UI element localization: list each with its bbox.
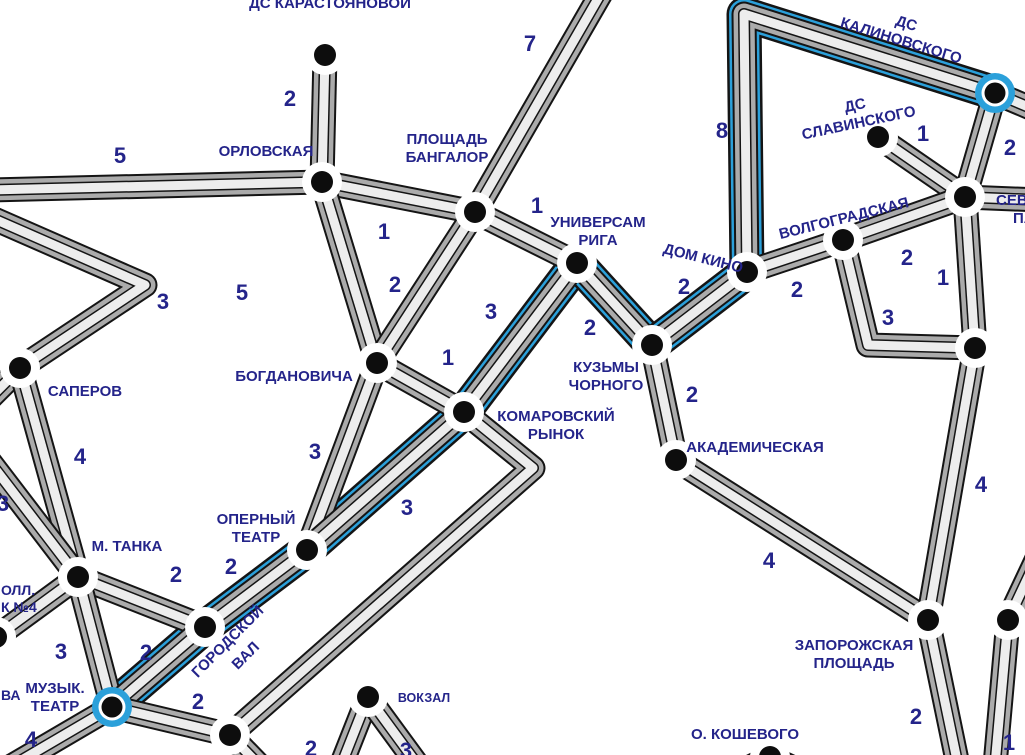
edge-weight-label: 2 (901, 245, 913, 270)
station-node-akademicheskaya[interactable] (665, 449, 687, 471)
edge-weight-label: 2 (192, 689, 204, 714)
edge-weight-label: 1 (1003, 730, 1015, 755)
edge-weight-label: 4 (74, 444, 87, 469)
station-label: ПА (1013, 210, 1025, 227)
edge-weight-label: 2 (1004, 135, 1016, 160)
edge-weight-label: 5 (236, 280, 248, 305)
edge-weight-label: 2 (140, 640, 152, 665)
station-node-muzyk-teatr[interactable] (102, 697, 123, 718)
station-node-unnamed-east[interactable] (997, 609, 1019, 631)
road-segment-light (322, 182, 377, 363)
station-node-orlovskaya[interactable] (311, 171, 333, 193)
edge-weight-label: 2 (910, 704, 922, 729)
edge-weight-label: 3 (882, 305, 894, 330)
station-node-sevastopolsky-park[interactable] (954, 186, 976, 208)
station-node-kuzmy-chornogo[interactable] (641, 334, 663, 356)
labels-layer: ДС КАРАСТОЯНОВОЙОРЛОВСКАЯПЛОЩАДЬБАНГАЛОР… (0, 0, 1025, 755)
route-road-segment-light (464, 263, 577, 412)
station-label: М. ТАНКА (92, 538, 163, 555)
edge-weight-label: 2 (170, 562, 182, 587)
station-label: ПЛОЩАДЬБАНГАЛОР (406, 131, 489, 166)
station-node-unnamed-park-corner[interactable] (964, 337, 986, 359)
edge-weight-label: 4 (975, 472, 988, 497)
station-label: БОГДАНОВИЧА (235, 368, 353, 385)
station-label: ЗАПОРОЖСКАЯПЛОЩАДЬ (795, 637, 914, 672)
station-node-m-tanka[interactable] (67, 566, 89, 588)
map-canvas: ДС КАРАСТОЯНОВОЙОРЛОВСКАЯПЛОЩАДЬБАНГАЛОР… (0, 0, 1025, 755)
station-node-komarovsky-rynok[interactable] (453, 401, 475, 423)
edge-weight-label: 3 (309, 439, 321, 464)
edge-weight-label: 2 (389, 272, 401, 297)
station-label: ВА (1, 687, 21, 703)
station-label: ОРЛОВСКАЯ (219, 143, 314, 160)
station-node-ds-karastoyanovoy[interactable] (314, 44, 336, 66)
edge-weight-label: 8 (716, 118, 728, 143)
station-label: КУЗЬМЫЧОРНОГО (569, 359, 644, 394)
station-label: АКАДЕМИЧЕСКАЯ (686, 439, 824, 456)
edge-weight-label: 2 (225, 554, 237, 579)
station-node-vokzal[interactable] (357, 686, 379, 708)
transit-route-map: ДС КАРАСТОЯНОВОЙОРЛОВСКАЯПЛОЩАДЬБАНГАЛОР… (0, 0, 1025, 755)
station-label: ОПЕРНЫЙТЕАТР (217, 510, 296, 546)
station-label: ВОКЗАЛ (398, 691, 450, 705)
edge-weight-label: 4 (763, 548, 776, 573)
station-label: СЕВА (996, 192, 1025, 209)
edge-weight-label: 7 (524, 31, 536, 56)
edge-weight-label: 2 (584, 315, 596, 340)
station-label: К №4 (1, 599, 37, 615)
station-node-zaporozhskaya-ploshchad[interactable] (917, 609, 939, 631)
station-node-universam-riga[interactable] (566, 252, 588, 274)
edge-weight-label: 5 (114, 143, 126, 168)
road-segment-light (928, 348, 975, 620)
station-label: САПЕРОВ (48, 383, 122, 400)
station-node-ploshchad-bangalor[interactable] (464, 201, 486, 223)
road-segment-light (676, 460, 928, 620)
station-node-unnamed-southwest[interactable] (219, 724, 241, 746)
edge-weight-label: 1 (531, 193, 543, 218)
edge-weight-label: 3 (400, 738, 412, 755)
station-label: ДС КАРАСТОЯНОВОЙ (249, 0, 411, 12)
edge-weight-label: 1 (937, 265, 949, 290)
station-label: ДССЛАВИНСКОГО (797, 85, 918, 143)
station-node-volgogradskaya[interactable] (832, 229, 854, 251)
edge-weight-label: 3 (0, 491, 9, 516)
edge-weight-label: 1 (378, 219, 390, 244)
station-node-saperov[interactable] (9, 357, 31, 379)
station-label: МУЗЫК.ТЕАТР (25, 680, 84, 715)
edge-weight-label: 3 (485, 299, 497, 324)
edge-weight-label: 3 (401, 495, 413, 520)
edge-weight-label: 2 (791, 277, 803, 302)
edge-weight-label: 1 (442, 345, 454, 370)
edge-weight-label: 1 (917, 121, 929, 146)
edge-weight-label: 2 (678, 274, 690, 299)
edge-weight-label: 3 (55, 639, 67, 664)
station-label: ОЛЛ. (1, 582, 35, 598)
edge-weight-label: 2 (305, 736, 317, 755)
station-node-bogdanovicha[interactable] (366, 352, 388, 374)
station-node-gorodskoy-val[interactable] (194, 616, 216, 638)
edge-weight-label: 2 (686, 382, 698, 407)
edge-weight-label: 4 (25, 727, 38, 752)
station-node-ds-kalinovskogo[interactable] (985, 83, 1006, 104)
station-label: О. КОШЕВОГО (691, 726, 799, 743)
edge-weight-label: 3 (157, 289, 169, 314)
road-segment-light (475, 0, 603, 212)
edge-weight-label: 2 (284, 86, 296, 111)
station-node-operny-teatr[interactable] (296, 539, 318, 561)
